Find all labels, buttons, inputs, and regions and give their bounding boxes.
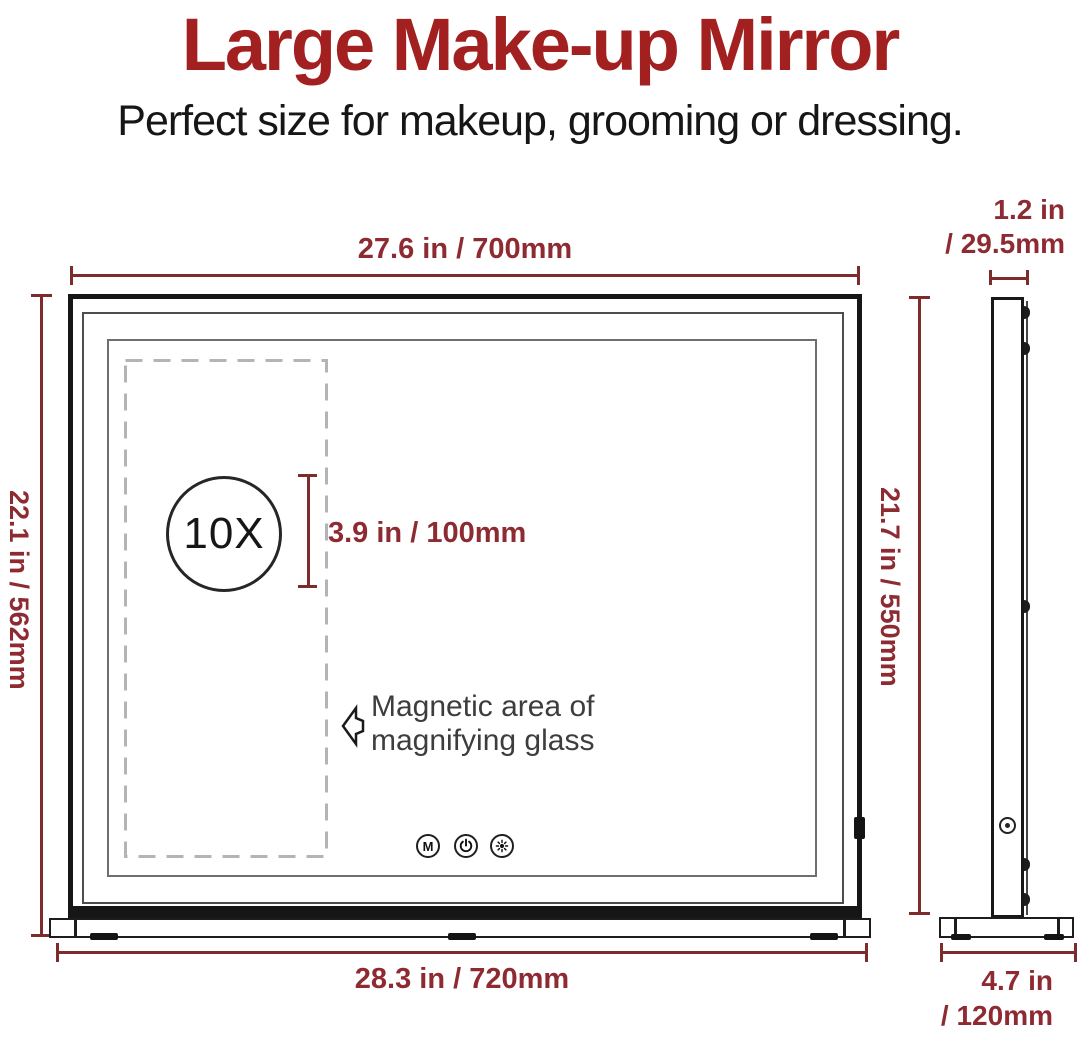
side-knob-dot xyxy=(1005,823,1010,828)
magnet-height-dimension-line xyxy=(307,476,310,588)
side-base-depth-dimension-label: 4.7 in / 120mm xyxy=(885,963,1053,1033)
base-width-dimension-label: 28.3 in / 720mm xyxy=(56,963,868,996)
side-base-depth-line1: 4.7 in xyxy=(885,963,1053,998)
power-icon xyxy=(458,838,474,854)
page-subtitle: Perfect size for makeup, grooming or dre… xyxy=(0,97,1080,146)
dimension-tick xyxy=(31,294,52,297)
product-diagram: Large Make-up Mirror Perfect size for ma… xyxy=(0,0,1080,1040)
magnetic-area-note-line2: magnifying glass xyxy=(371,724,594,758)
mount-bump xyxy=(1024,893,1030,906)
front-width-dimension-label: 27.6 in / 700mm xyxy=(70,233,860,266)
magnetic-area-note: Magnetic area of magnifying glass xyxy=(371,690,594,758)
dimension-tick xyxy=(857,266,860,285)
base-foot xyxy=(951,934,971,940)
base-end-cap xyxy=(843,918,846,938)
dimension-tick xyxy=(1074,943,1077,962)
mount-bump xyxy=(1024,306,1030,319)
base-foot xyxy=(810,933,838,940)
base-end-cap xyxy=(74,918,77,938)
dimension-tick xyxy=(298,585,317,588)
dimension-tick xyxy=(1026,270,1029,285)
side-depth-dimension-line1: 1.2 in xyxy=(890,193,1065,227)
side-depth-dimension-line2: / 29.5mm xyxy=(890,227,1065,261)
mount-bump xyxy=(1024,600,1030,613)
dimension-tick xyxy=(940,943,943,962)
dimension-tick xyxy=(865,943,868,962)
dimension-tick xyxy=(56,943,59,962)
side-switch-bump xyxy=(854,817,865,839)
side-base-depth-line2: / 120mm xyxy=(885,998,1053,1033)
base-width-dimension-line xyxy=(56,951,868,954)
mount-bump xyxy=(1024,858,1030,871)
dimension-tick xyxy=(70,266,73,285)
magnifier-zoom-label: 10X xyxy=(183,509,264,559)
front-height-dimension-label: 22.1 in / 562mm xyxy=(3,490,34,690)
side-depth-dimension-label: 1.2 in / 29.5mm xyxy=(890,193,1065,261)
side-knob xyxy=(999,817,1016,834)
left-arrow-icon xyxy=(341,702,365,750)
mode-button: M xyxy=(416,834,440,858)
side-height-dimension-line xyxy=(918,298,921,915)
side-base-depth-dimension-line xyxy=(940,951,1077,954)
base-foot xyxy=(448,933,476,940)
front-width-dimension-line xyxy=(70,274,860,277)
page-title: Large Make-up Mirror xyxy=(0,2,1080,87)
side-depth-dimension-line xyxy=(989,277,1029,280)
brightness-button xyxy=(490,834,514,858)
base-foot xyxy=(1044,934,1064,940)
magnet-height-dimension-label: 3.9 in / 100mm xyxy=(328,517,526,550)
mode-button-glyph: M xyxy=(423,839,434,854)
base-foot xyxy=(90,933,118,940)
dimension-tick xyxy=(909,296,930,299)
front-height-dimension-line xyxy=(40,296,43,937)
dimension-tick xyxy=(298,474,317,477)
magnetic-zone-dashed-outline xyxy=(124,359,328,858)
magnifier-circle: 10X xyxy=(166,476,282,592)
brightness-icon xyxy=(494,838,510,854)
dimension-tick xyxy=(989,270,992,285)
dimension-tick xyxy=(909,912,930,915)
side-height-dimension-label: 21.7 in / 550mm xyxy=(874,487,905,687)
power-button xyxy=(454,834,478,858)
magnetic-area-note-line1: Magnetic area of xyxy=(371,690,594,724)
mount-bump xyxy=(1024,342,1030,355)
